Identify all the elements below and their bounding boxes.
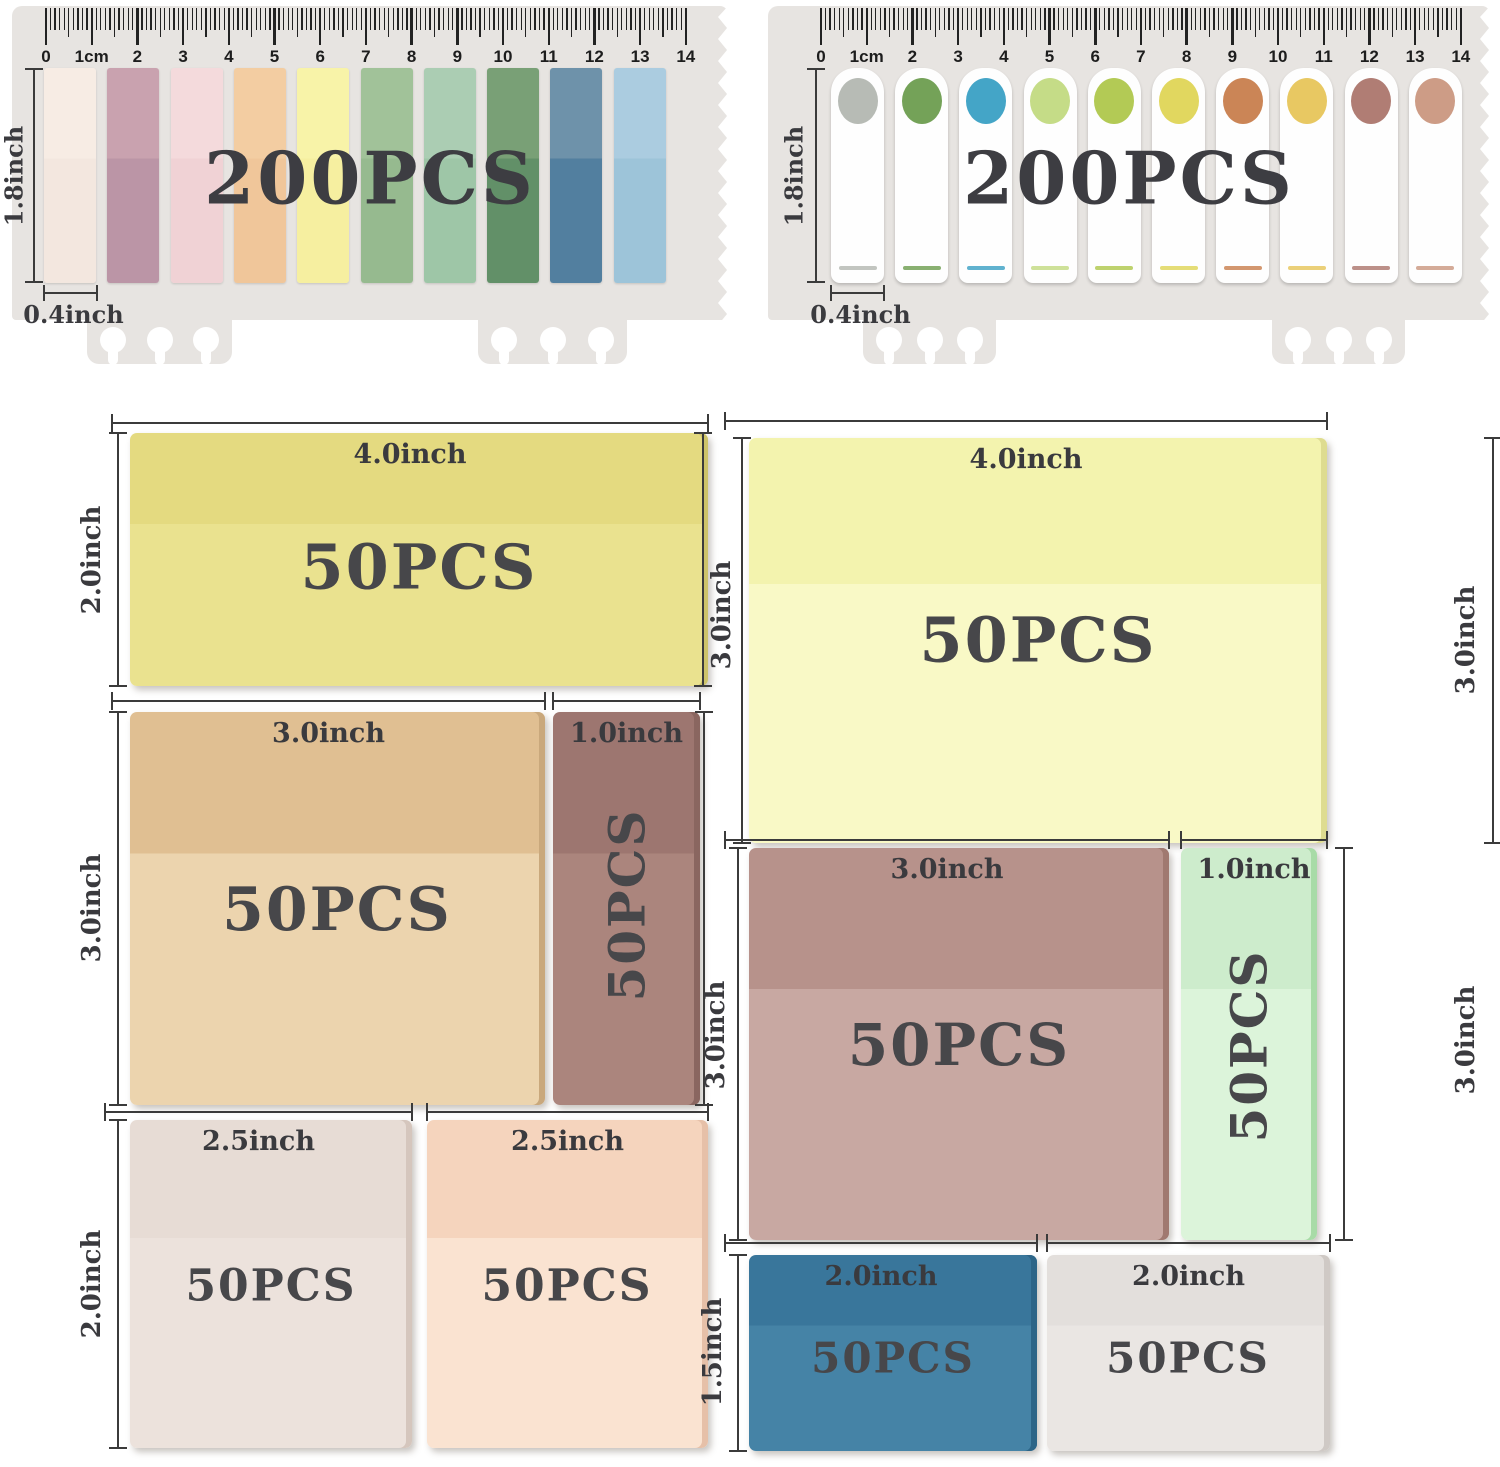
ruler-tick [164,8,165,30]
ruler-tick [1131,8,1132,30]
ruler-tick [662,8,663,37]
binder-keyhole-icon [1334,344,1344,365]
measure-line [105,1111,412,1113]
ruler-tick [141,8,142,30]
tab-line-yellow [1160,266,1198,270]
tab-strip-mauve [107,68,159,283]
height-dimension-label: 2.0inch [77,1230,107,1339]
ruler-tick [585,8,586,30]
ruler-tick [370,8,371,30]
measure-tick [707,414,709,432]
ruler-tick [384,8,385,30]
measure-tick [109,1447,127,1449]
ruler-tick [242,8,243,30]
ruler-tick [347,8,348,30]
ruler-tick [1117,8,1118,37]
ruler-tick [839,8,840,30]
ruler-tick [907,8,908,30]
ruler-number: 12 [585,47,604,67]
ruler-tick [283,8,284,30]
ruler-tick [228,8,231,45]
tab-dot-golden-yellow [1287,78,1327,124]
ruler-tick [123,8,124,30]
ruler-number: 9 [453,47,462,67]
ruler-tick [1236,8,1237,30]
ruler-number: 13 [1406,47,1425,67]
ruler-tick [1058,8,1059,30]
ruler-tick [999,8,1000,30]
ruler-tick [96,8,97,30]
ruler-tick [470,8,471,30]
tab-dot-light-yellow-green [1030,78,1070,124]
measure-line [117,433,119,686]
binder-keyhole-icon [1293,344,1303,365]
ruler-tick [525,8,526,37]
measure-tick [411,1103,413,1121]
ruler-tick [1355,8,1356,30]
ruler-tick [1081,8,1082,30]
binder-keyhole-icon [884,344,894,365]
ruler-tick [466,8,467,30]
ruler-tick [1127,8,1128,30]
ruler-tick [1337,8,1338,30]
width-dimension-label: 4.0inch [354,439,467,470]
ruler-tick [45,8,48,45]
measure-tick [544,692,546,710]
ruler-tick [1185,8,1188,45]
height-dimension-label: 3.0inch [1451,986,1481,1095]
ruler-tick [361,8,362,30]
ruler-tick [957,8,960,45]
ruler-tick [994,8,995,30]
ruler-tick [1040,8,1041,30]
pcs-count-label: 50PCS [185,1261,356,1312]
ruler-tick [1136,8,1137,30]
ruler-tick [639,8,642,45]
ruler-tick [292,8,293,30]
ruler-tick [1090,8,1091,30]
ruler-tick [1428,8,1429,30]
ruler-tick [365,8,368,45]
ruler-tick [1401,8,1402,30]
tab-line-rosy-brown [1352,266,1390,270]
height-dimension-label: 3.0inch [77,854,107,963]
ruler-tick [1350,8,1351,30]
ruler-tick [273,8,276,45]
ruler-tick [429,8,430,30]
ruler-number: 7 [1136,47,1145,67]
measure-line [33,69,35,283]
ruler-number: 2 [133,47,142,67]
ruler-tick [1328,8,1329,30]
ruler-tick [54,8,55,30]
ruler-tick [553,8,554,30]
measure-tick [1335,847,1353,849]
measure-line [117,712,119,1105]
ruler-tick [1113,8,1114,30]
ruler-tick [935,8,936,37]
height-dimension-label: 1.5inch [698,1298,728,1407]
ruler-tick [948,8,949,30]
measure-line [725,1242,1037,1244]
measure-tick [694,685,712,687]
ruler-tick [989,8,990,30]
ruler-tick [1218,8,1219,30]
ruler-tick [182,8,185,45]
ruler-tick [1241,8,1242,30]
measure-line [702,433,704,686]
ruler-tick [132,8,133,30]
ruler-tick [493,8,494,30]
ruler-tick [562,8,563,30]
ruler-tick [635,8,636,30]
width-dimension-label: 2.0inch [1132,1261,1245,1292]
ruler-tick [425,8,426,30]
measure-tick [729,847,747,849]
ruler-tick [1191,8,1192,30]
binder-keyhole-icon [1374,344,1384,365]
tab-line-golden-yellow [1288,266,1326,270]
ruler-tick [1035,8,1036,30]
measure-tick [724,1234,726,1252]
ruler-tick [356,8,357,30]
ruler-tick [603,8,604,30]
ruler-tick [626,8,627,30]
ruler-tick [829,8,830,30]
ruler-tick [1108,8,1109,30]
ruler-tick [1149,8,1150,30]
measure-line [815,69,817,283]
ruler-tick [1341,8,1342,30]
ruler-tick [1255,8,1256,37]
measure-tick [830,285,832,301]
measure-tick [1046,1234,1048,1252]
pcs-count-label: 50PCS [1106,1334,1270,1383]
measure-tick [807,281,825,283]
binder-keyhole-icon [548,344,558,365]
ruler-number: 9 [1228,47,1237,67]
measure-line [1343,848,1345,1240]
ruler-tick [1026,8,1027,37]
ruler-tick [516,8,517,30]
ruler-number: 11 [1315,47,1333,67]
ruler-tick [521,8,522,30]
pcs-count-label: 50PCS [222,875,452,945]
pcs-count-label: 50PCS [598,808,657,1001]
ruler-tick [1021,8,1022,30]
ruler-tick [575,8,576,30]
ruler-tick [169,8,170,30]
measure-line [1181,839,1327,841]
ruler-tick [1008,8,1009,30]
ruler-tick [397,8,398,30]
ruler-tick [50,8,51,30]
ruler-tick [681,8,682,30]
ruler-tick [1259,8,1260,30]
ruler-tick [128,8,129,30]
ruler-tick [461,8,462,30]
pcs-count-label: 50PCS [848,1011,1070,1079]
ruler-tick [1318,8,1319,30]
ruler-tick [589,8,590,30]
ruler-tick [1382,8,1383,30]
ruler-tick [178,8,179,30]
measure-tick [104,1103,106,1121]
ruler-tick [676,8,677,30]
ruler-tick [898,8,899,30]
measure-line [741,438,743,843]
ruler-tick [1003,8,1006,45]
measure-tick [96,285,98,301]
ruler-number: 3 [953,47,962,67]
measure-line [112,700,545,702]
ruler-tick [64,8,65,30]
measure-tick [25,68,43,70]
tab-line-green [903,266,941,270]
ruler-number: 0 [41,47,50,67]
ruler-tick [571,8,572,37]
ruler-tick [352,8,353,30]
ruler-tick [971,8,972,30]
ruler-tick [1396,8,1397,30]
measure-tick [699,692,701,710]
ruler-tick [884,8,885,30]
ruler-tick [59,8,60,30]
ruler-tick [146,8,147,30]
ruler-number: 14 [676,47,695,67]
ruler-tick [967,8,968,30]
ruler-tick [530,8,531,30]
ruler-tick [260,8,261,30]
ruler-tick [543,8,544,30]
ruler-tick [1264,8,1265,30]
ruler-number: 8 [407,47,416,67]
ruler-number: 1cm [850,47,884,67]
ruler-tick [82,8,83,30]
ruler-tick [1012,8,1013,30]
width-dimension-label: 3.0inch [891,854,1004,885]
ruler-tick [1250,8,1251,30]
ruler-tick [1031,8,1032,30]
ruler-tick [1122,8,1123,30]
ruler-tick [916,8,917,30]
ruler-tick [1145,8,1146,30]
ruler-tick [256,8,257,30]
ruler-tick [685,8,688,45]
measure-tick [1484,437,1500,439]
ruler-tick [644,8,645,30]
measure-line [112,422,708,424]
ruler-tick [410,8,413,45]
ruler-tick [237,8,238,30]
ruler-tick [310,8,311,30]
ruler-tick [324,8,325,30]
binder-keyhole-icon [201,344,211,365]
ruler-number: 1cm [75,47,109,67]
ruler-tick [866,8,869,45]
ruler-number: 6 [315,47,324,67]
measure-tick [43,285,45,301]
pcs-count-label: 50PCS [1220,949,1279,1142]
ruler-tick [173,8,174,30]
ruler-tick [1277,8,1280,45]
measure-line [1047,1242,1330,1244]
ruler-tick [1282,8,1283,30]
ruler-number: 7 [361,47,370,67]
measure-tick [1168,831,1170,849]
ruler-tick [1291,8,1292,30]
tab-width-label: 0.4inch [23,300,123,329]
measure-tick [109,711,127,713]
measure-tick [1326,831,1328,849]
measure-tick [25,281,43,283]
ruler-number: 5 [1045,47,1054,67]
ruler-tick [1273,8,1274,30]
width-dimension-label: 2.5inch [511,1126,624,1157]
ruler-tick [871,8,872,30]
ruler-tick [617,8,618,37]
ruler-tick [269,8,270,30]
ruler-tick [557,8,558,30]
ruler-tick [1424,8,1425,30]
ruler-tick [1433,8,1434,30]
ruler-tick [1378,8,1379,30]
ruler-tick [1163,8,1164,37]
ruler-number: 13 [631,47,650,67]
card-scalloped-edge [1480,6,1492,320]
measure-tick [111,414,113,432]
ruler-tick [288,8,289,30]
ruler-tick [1245,8,1246,30]
height-dimension-label: 3.0inch [701,981,731,1090]
ruler-tick [1223,8,1224,30]
ruler-tick [1159,8,1160,30]
ruler-tick [1067,8,1068,30]
measure-line [725,839,1169,841]
ruler-tick [976,8,977,30]
ruler-number: 8 [1182,47,1191,67]
ruler-tick [475,8,476,30]
ruler-tick [73,8,74,30]
measure-tick [729,1254,747,1256]
ruler-tick [443,8,444,30]
ruler-tick [843,8,844,37]
tab-line-dusty-pink [1416,266,1454,270]
width-dimension-label: 2.5inch [202,1126,315,1157]
ruler-tick [251,8,252,37]
measure-line [737,848,739,1240]
ruler-number: 10 [1269,47,1288,67]
ruler-tick [1446,8,1447,30]
ruler-tick [1063,8,1064,30]
measure-tick [695,1104,713,1106]
measure-tick [729,1239,747,1241]
ruler-tick [192,8,193,30]
measure-line [44,292,97,294]
ruler-tick [301,8,302,30]
ruler-tick [1053,8,1054,30]
ruler-tick [438,8,439,30]
ruler-tick [593,8,596,45]
measure-tick [729,1450,747,1452]
ruler-tick [329,8,330,30]
tab-dot-teal-blue [966,78,1006,124]
ruler-tick [857,8,858,30]
tab-dot-terracotta [1223,78,1263,124]
measure-tick [426,1103,428,1121]
binder-keyhole-icon [596,344,606,365]
ruler-tick [150,8,151,30]
ruler-tick [374,8,375,30]
ruler-tick [91,8,94,45]
ruler-tick [105,8,106,30]
ruler-tick [1405,8,1406,30]
ruler-number: 6 [1090,47,1099,67]
ruler-tick [861,8,862,30]
ruler-tick [1017,8,1018,30]
ruler-number: 5 [270,47,279,67]
ruler-tick [1332,8,1333,30]
ruler-tick [342,8,343,37]
ruler-tick [319,8,322,45]
ruler-tick [1268,8,1269,30]
card-scalloped-edge [718,6,730,320]
ruler-tick [507,8,508,30]
measure-tick [724,412,726,430]
tab-strip-light-blue [614,68,666,283]
ruler-tick [434,8,435,37]
ruler-tick [187,8,188,30]
ruler-tick [333,8,334,30]
ruler-tick [201,8,202,30]
ruler-tick [219,8,220,30]
ruler-tick [1392,8,1393,37]
ruler-tick [1286,8,1287,30]
ruler-tick [388,8,389,37]
ruler-tick [233,8,234,30]
measure-tick [111,692,113,710]
ruler-tick [852,8,853,30]
tab-height-label: 1.8inch [780,126,809,226]
ruler-tick [962,8,963,30]
measure-line [831,292,884,294]
ruler-tick [278,8,279,30]
ruler-tick [1209,8,1210,37]
width-dimension-label: 4.0inch [970,444,1083,475]
ruler-tick [911,8,914,45]
ruler-tick [925,8,926,30]
tab-line-gray [839,266,877,270]
ruler-tick [338,8,339,30]
tab-strip-steel-blue [550,68,602,283]
measure-tick [109,1104,127,1106]
ruler-number: 14 [1451,47,1470,67]
width-dimension-label: 1.0inch [570,718,683,749]
ruler-number: 12 [1360,47,1379,67]
ruler-tick [160,8,161,37]
ruler-tick [630,8,631,30]
ruler-tick [1195,8,1196,30]
ruler-number: 3 [178,47,187,67]
ruler-tick [539,8,540,30]
ruler-tick [246,8,247,30]
ruler-tick [448,8,449,30]
ruler-number: 4 [999,47,1008,67]
ruler-tick [402,8,403,30]
ruler-tick [939,8,940,30]
tab-dot-green [902,78,942,124]
measure-tick [109,1119,127,1121]
